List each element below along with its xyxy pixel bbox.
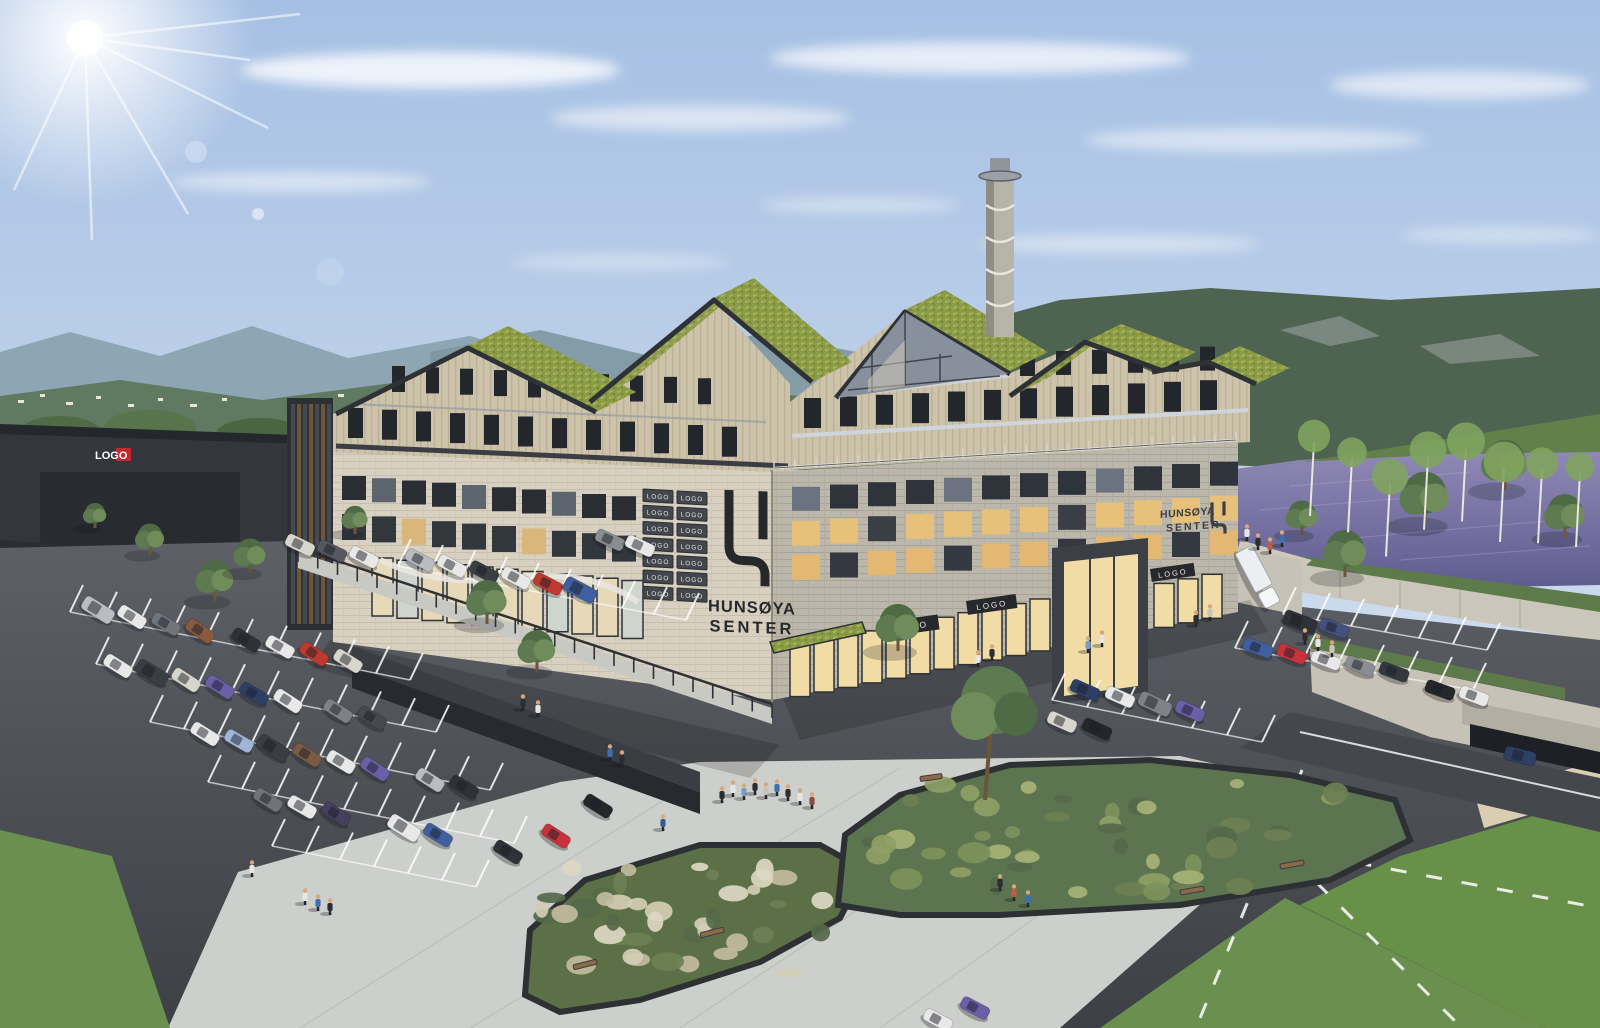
person-body	[1207, 609, 1212, 617]
tree-canopy	[1561, 504, 1585, 528]
person-body	[752, 783, 757, 791]
planting	[1115, 882, 1148, 896]
atrium-glass	[291, 404, 331, 624]
planting	[606, 913, 620, 930]
person-head	[1330, 640, 1334, 644]
office-window	[982, 509, 1010, 534]
office-window	[552, 492, 576, 516]
person-body	[315, 899, 320, 907]
atrium-glass-strip	[321, 404, 325, 624]
planting	[552, 905, 578, 923]
person-head	[1280, 530, 1284, 534]
scene-svg: LOGO	[0, 0, 1600, 1028]
logo-grid-label: LOGO	[681, 528, 704, 536]
planting	[623, 949, 643, 965]
warehouse-logo-sign: LOGO	[95, 448, 131, 462]
tree-shadow	[184, 595, 231, 610]
logo-grid-label: LOGO	[681, 576, 704, 584]
planting	[1015, 851, 1040, 863]
person-body	[1011, 889, 1016, 897]
logo-grid-label: LOGO	[681, 592, 704, 600]
person-head	[1245, 524, 1249, 528]
chimney-cap	[990, 158, 1010, 172]
person-body	[619, 755, 624, 763]
office-window	[492, 526, 516, 552]
logo-grid-label: LOGO	[647, 509, 670, 517]
office-window	[492, 487, 516, 511]
apartment-window	[688, 425, 703, 455]
apartment-window	[494, 370, 507, 396]
birch-canopy	[1372, 458, 1408, 494]
person-head	[1086, 636, 1090, 640]
person-head	[1012, 884, 1016, 888]
apartment-window	[460, 369, 473, 395]
person-head	[1268, 537, 1272, 541]
person-body	[797, 793, 802, 801]
person-head	[976, 650, 980, 654]
planting	[647, 912, 663, 932]
office-window	[522, 528, 546, 554]
office-window	[372, 516, 396, 542]
apartment-window	[450, 413, 465, 443]
tree-canopy	[93, 508, 106, 521]
planting	[1054, 795, 1072, 804]
apartment-window	[654, 423, 669, 453]
person-head	[536, 700, 540, 704]
birch-canopy	[1526, 447, 1558, 479]
office-window	[830, 553, 858, 578]
apartment-window	[722, 427, 737, 457]
planting	[974, 798, 1000, 817]
person-head	[1316, 634, 1320, 638]
tree-shadow	[222, 568, 262, 580]
office-window	[402, 481, 426, 505]
office-window	[830, 485, 858, 509]
planting	[811, 924, 830, 942]
birch-canopy	[1447, 422, 1485, 460]
person-head	[620, 750, 624, 754]
office-window	[1172, 464, 1200, 488]
person-body	[774, 784, 779, 792]
planting	[1137, 801, 1157, 815]
planting	[974, 831, 990, 841]
apartment-window	[876, 395, 893, 425]
tree-shadow	[1310, 570, 1364, 587]
office-window	[432, 483, 456, 507]
apartment-window	[948, 392, 965, 422]
apartment-window	[1092, 385, 1109, 415]
person-body	[1085, 641, 1090, 649]
tree-shadow	[1468, 483, 1526, 501]
person-head	[316, 894, 320, 898]
planting	[1114, 838, 1128, 855]
planting	[537, 892, 566, 902]
person-head	[764, 782, 768, 786]
tree-shadow	[506, 665, 553, 680]
planting	[1226, 878, 1254, 895]
person-body	[1267, 542, 1272, 550]
office-window	[792, 487, 820, 511]
logo-grid-label: LOGO	[681, 495, 704, 503]
atrium-glass-strip	[303, 404, 307, 624]
person-head	[990, 644, 994, 648]
planting	[960, 785, 979, 801]
planting	[890, 868, 922, 890]
apartment-window	[984, 390, 1001, 420]
planting	[1263, 829, 1291, 841]
logo-grid-label: LOGO	[647, 493, 670, 501]
planting	[1021, 781, 1037, 794]
tree-canopy	[533, 639, 555, 661]
person-body	[975, 655, 980, 663]
person-head	[1194, 610, 1198, 614]
apartment-window	[1164, 382, 1181, 412]
apartment-window	[1200, 347, 1215, 371]
tree-shadow	[454, 618, 504, 634]
person-body	[607, 749, 612, 757]
apartment-window	[698, 378, 711, 404]
atrium-glass-strip	[327, 404, 331, 624]
apartment-window	[416, 411, 431, 441]
office-window	[1096, 469, 1124, 493]
person-head	[328, 898, 332, 902]
office-window	[1134, 500, 1162, 525]
planting	[902, 794, 919, 807]
office-window	[830, 519, 858, 544]
planting	[622, 933, 652, 947]
planting	[613, 872, 627, 894]
atrium-glass-strip	[309, 404, 313, 624]
planting	[691, 863, 708, 872]
apartment-window	[840, 396, 857, 426]
tree-canopy	[352, 512, 367, 527]
planting	[775, 969, 803, 977]
logo-grid-label: LOGO	[647, 590, 670, 598]
storefront-glass	[1030, 599, 1050, 651]
office-window	[944, 546, 972, 571]
lens-flare-spot	[185, 141, 207, 163]
person-body	[1329, 645, 1334, 653]
person-head	[250, 860, 254, 864]
person-head	[1256, 533, 1260, 537]
office-window	[906, 514, 934, 539]
planting	[1097, 823, 1126, 833]
lens-flare-spot	[316, 258, 344, 286]
office-window	[792, 521, 820, 546]
storefront-glass	[814, 640, 834, 692]
office-window	[944, 512, 972, 537]
planting	[1143, 882, 1170, 900]
office-window	[402, 519, 426, 545]
planting	[1146, 854, 1160, 869]
person-body	[249, 865, 254, 873]
logo-grid-label: LOGO	[681, 560, 704, 568]
planting	[719, 885, 749, 901]
storefront-glass	[790, 645, 810, 697]
office-window	[982, 475, 1010, 499]
apartment-window	[552, 418, 567, 448]
main-sign-line1: HUNSØYA	[708, 597, 796, 618]
apartment-window	[1092, 350, 1107, 374]
planting	[1005, 826, 1020, 838]
person-head	[1303, 628, 1307, 632]
office-window	[1210, 462, 1238, 486]
person-head	[753, 778, 757, 782]
birch-canopy	[1298, 420, 1330, 452]
atrium-glass-strip	[315, 404, 319, 624]
logo-grid-label: LOGO	[681, 544, 704, 552]
apartment-window	[620, 422, 635, 452]
office-window	[612, 496, 636, 520]
planting	[596, 892, 614, 906]
person-head	[720, 786, 724, 790]
office-window	[1172, 532, 1200, 557]
office-window	[906, 548, 934, 573]
person-head	[303, 888, 307, 892]
person-body	[730, 785, 735, 793]
office-window	[1020, 541, 1048, 566]
person-head	[775, 779, 779, 783]
planting	[811, 892, 833, 909]
person-head	[1026, 890, 1030, 894]
person-head	[742, 783, 746, 787]
logo-grid-label: LOGO	[681, 511, 704, 519]
logo-grid-label: LOGO	[647, 526, 670, 534]
tree-canopy	[147, 531, 164, 548]
tree-shadow	[124, 550, 160, 561]
birch-canopy	[1484, 442, 1525, 483]
person-head	[1100, 630, 1104, 634]
warehouse-logo-label: LOGO	[95, 450, 128, 462]
storefront-glass	[1154, 583, 1174, 627]
person-body	[989, 649, 994, 657]
birch-canopy	[1337, 437, 1367, 467]
person-body	[520, 699, 525, 707]
person-head	[998, 874, 1002, 878]
person-body	[660, 819, 665, 827]
apartment-window	[1056, 387, 1073, 417]
apartment-window	[426, 367, 439, 393]
office-window	[432, 521, 456, 547]
apartment-window	[348, 408, 363, 438]
person-body	[327, 903, 332, 911]
person-body	[997, 879, 1002, 887]
person-head	[786, 784, 790, 788]
office-window	[868, 550, 896, 575]
person-body	[1279, 535, 1284, 543]
person-body	[785, 789, 790, 797]
planting	[1206, 837, 1237, 859]
office-window	[1020, 507, 1048, 532]
apartment-window	[1020, 388, 1037, 418]
planting	[1068, 886, 1087, 898]
storefront-glass	[1006, 604, 1026, 656]
apartment-window	[912, 393, 929, 423]
planting	[651, 952, 684, 971]
planting	[1006, 862, 1032, 871]
office-window	[1058, 505, 1086, 530]
office-window	[906, 480, 934, 504]
person-body	[1255, 538, 1260, 546]
birch-canopy	[1566, 453, 1594, 481]
lens-flare-spot	[252, 208, 264, 220]
office-window	[582, 494, 606, 518]
tree-canopy	[1341, 540, 1366, 565]
chimney-shade	[986, 172, 994, 337]
planting	[562, 860, 581, 876]
planting	[871, 835, 896, 855]
person-head	[1208, 604, 1212, 608]
apartment-window	[804, 398, 821, 428]
storefront-glass	[958, 613, 978, 665]
person-head	[798, 788, 802, 792]
planting	[1230, 779, 1244, 788]
tree-shadow	[73, 524, 102, 533]
office-window	[462, 524, 486, 550]
apartment-window	[484, 415, 499, 445]
office-window	[1058, 471, 1086, 495]
planting	[1044, 812, 1070, 822]
viewing-platform	[979, 171, 1021, 181]
planting	[747, 885, 760, 895]
person-body	[1315, 639, 1320, 647]
tree-shadow	[331, 530, 363, 540]
entrance-glass	[1064, 554, 1138, 696]
person-head	[661, 814, 665, 818]
person-head	[731, 780, 735, 784]
office-window	[982, 543, 1010, 568]
planting	[706, 908, 721, 929]
person-body	[763, 787, 768, 795]
office-window	[792, 555, 820, 580]
office-window	[462, 485, 486, 509]
apartment-window	[1128, 383, 1145, 413]
storefront-glass	[838, 635, 858, 687]
person-body	[1025, 895, 1030, 903]
office-window	[342, 476, 366, 500]
office-window	[372, 478, 396, 502]
planting	[770, 900, 786, 908]
tree-shadow	[1386, 517, 1447, 536]
person-body	[302, 893, 307, 901]
apartment-window	[664, 377, 677, 403]
tree-canopy	[1299, 508, 1317, 526]
office-window	[868, 482, 896, 506]
office-window	[1020, 473, 1048, 497]
main-sign-line2: SENTER	[710, 617, 795, 638]
planting	[1323, 783, 1348, 804]
person-body	[1099, 635, 1104, 643]
office-window	[1096, 503, 1124, 528]
person-body	[1244, 529, 1249, 537]
person-body	[1302, 633, 1307, 641]
person-body	[809, 797, 814, 805]
planting	[958, 842, 991, 863]
planting	[753, 927, 774, 944]
office-window	[868, 516, 896, 541]
apartment-window	[586, 420, 601, 450]
planting	[950, 867, 971, 877]
office-window	[552, 531, 576, 557]
office-window	[1134, 466, 1162, 490]
person-head	[521, 694, 525, 698]
office-window	[522, 490, 546, 514]
atrium-glass-strip	[291, 404, 295, 624]
office-window	[944, 478, 972, 502]
logo-grid-label: LOGO	[647, 574, 670, 582]
planting	[1173, 870, 1204, 884]
apartment-window	[382, 410, 397, 440]
tree-canopy	[483, 590, 507, 614]
person-head	[810, 792, 814, 796]
tree-shadow	[863, 644, 917, 661]
person-body	[1193, 615, 1198, 623]
rendering-canvas: LOGO	[0, 0, 1600, 1028]
person-head	[608, 744, 612, 748]
apartment-window	[1200, 380, 1217, 410]
planting	[726, 933, 748, 951]
tree-canopy	[894, 614, 919, 639]
tree-canopy	[247, 546, 265, 564]
planting	[921, 847, 946, 859]
apartment-window	[518, 417, 533, 447]
planting	[707, 869, 719, 880]
birch-canopy	[1410, 431, 1447, 468]
atrium-glass-strip	[297, 404, 301, 624]
person-body	[535, 705, 540, 713]
